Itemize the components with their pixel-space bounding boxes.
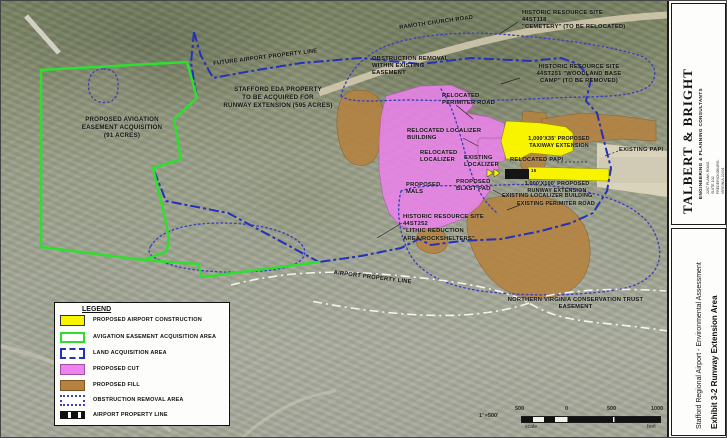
legend-swatch-brown-fill — [60, 380, 85, 391]
feet-word: feet — [647, 424, 656, 430]
label-existing-perimiter-road: EXISTING PERIMITER ROAD — [517, 201, 595, 208]
legend-label: PROPOSED CUT — [93, 366, 139, 372]
map-area: RAMOTH CHURCH ROAD HISTORIC RESOURCE SIT… — [1, 1, 667, 438]
legend-row-obstruction-removal: OBSTRUCTION REMOVAL AREA — [60, 394, 184, 406]
legend-swatch-green-outline — [60, 332, 85, 343]
label-relocated-localizer: RELOCATED LOCALIZER — [420, 150, 457, 164]
exhibit-sheet: RAMOTH CHURCH ROAD HISTORIC RESOURCE SIT… — [0, 0, 727, 438]
scale-bar: 1"=500' 500 0 500 1000 scale feet — [479, 403, 665, 437]
legend-label: PROPOSED AIRPORT CONSTRUCTION — [93, 317, 202, 323]
label-relocated-papi: RELOCATED PAPI — [510, 157, 563, 164]
legend-swatch-magenta-fill — [60, 364, 85, 375]
legend-swatch-blue-dash-dot — [60, 348, 85, 359]
legend-label: LAND ACQUISITION AREA — [93, 350, 167, 356]
label-proposed-blast-pad: PROPOSED BLAST PAD — [456, 179, 491, 193]
exhibit-title-block: Stafford Regional Airport - Environmenta… — [671, 228, 726, 436]
legend-row-proposed-cut: PROPOSED CUT — [60, 363, 139, 375]
scale-tick-500-right: 500 — [607, 406, 616, 412]
legend-swatch-yellow-fill — [60, 315, 85, 326]
road-bottom-center — [241, 391, 336, 438]
exhibit-title: Exhibit 3-2 Runway Extension Area — [710, 295, 719, 429]
firm-address: 2207 PLANK ROAD, SUITE 102 FREDERICKSBUR… — [706, 159, 727, 194]
legend-label: AIRPORT PROPERTY LINE — [93, 412, 168, 418]
label-obstruction-removal-easement: OBSTRUCTION REMOVAL WITHIN EXISTING EASE… — [372, 56, 448, 78]
legend-label: AVIGATION EASEMENT ACQUISITION AREA — [93, 334, 216, 340]
scale-tick-0: 0 — [565, 406, 568, 412]
legend-row-airport-property-line: AIRPORT PROPERTY LINE — [60, 409, 168, 421]
label-historic-cemetery: HISTORIC RESOURCE SITE 44ST118 "CEMETERY… — [522, 10, 625, 32]
cleared-strip — [26, 16, 59, 53]
label-existing-localizer: EXISTING LOCALIZER — [464, 155, 499, 169]
label-taxiway-extension: 1,000'X35' PROPOSED TAXIWAY EXTENSION — [519, 136, 599, 150]
scale-word: scale — [525, 424, 537, 430]
firm-name: TALBERT & BRIGHT — [680, 68, 696, 214]
legend-box: LEGEND PROPOSED AIRPORT CONSTRUCTION AVI… — [54, 302, 230, 426]
legend-label: PROPOSED FILL — [93, 382, 140, 388]
title-block-sidebar: TALBERT & BRIGHT ENGINEERING & PLANNING … — [667, 1, 727, 438]
scale-tick-500-left: 500 — [515, 406, 524, 412]
project-title: Stafford Regional Airport - Environmenta… — [696, 262, 703, 429]
legend-label: OBSTRUCTION REMOVAL AREA — [93, 397, 184, 403]
legend-row-proposed-airport-construction: PROPOSED AIRPORT CONSTRUCTION — [60, 314, 202, 326]
firm-title-block: TALBERT & BRIGHT ENGINEERING & PLANNING … — [671, 3, 726, 225]
label-relocated-localizer-building: RELOCATED LOCALIZER BUILDING — [407, 128, 481, 142]
label-historic-woodland: HISTORIC RESOURCE SITE 44ST251 "WOODLAND… — [520, 64, 638, 86]
label-existing-localizer-building: EXISTING LOCALIZER BUILDING — [502, 193, 592, 200]
scale-bar-graphic — [521, 416, 661, 423]
legend-row-avigation-easement: AVIGATION EASEMENT ACQUISITION AREA — [60, 331, 216, 343]
legend-row-proposed-fill: PROPOSED FILL — [60, 379, 140, 391]
label-existing-papi: EXISTING PAPI — [619, 147, 663, 154]
runway-threshold-bar — [505, 169, 529, 179]
legend-row-land-acquisition: LAND ACQUISITION AREA — [60, 347, 167, 359]
scale-tick-1000: 1000 — [651, 406, 663, 412]
firm-subtitle: ENGINEERING & PLANNING CONSULTANTS — [698, 88, 703, 199]
scale-ratio: 1"=500' — [479, 413, 498, 419]
legend-swatch-black-dash-line — [60, 411, 85, 419]
legend-swatch-blue-dotted — [60, 395, 85, 406]
label-stafford-eda-property: STAFFORD EDA PROPERTY TO BE ACQUIRED FOR… — [208, 86, 348, 109]
label-proposed-avigation-easement: PROPOSED AVIGATION EASEMENT ACQUISITION … — [61, 116, 183, 139]
label-relocated-perimiter-road: RELOCATED PERIMITER ROAD — [442, 93, 495, 107]
label-proposed-mals: PROPOSED MALS — [406, 182, 440, 196]
label-historic-lithic: HISTORIC RESOURCE SITE 44ST252 "LITHIC R… — [403, 214, 484, 243]
label-nova-conservation-trust: NORTHERN VIRGINIA CONSERVATION TRUST EAS… — [488, 297, 663, 311]
label-runway-number: 15 — [531, 168, 536, 174]
legend-title: LEGEND — [82, 306, 111, 313]
